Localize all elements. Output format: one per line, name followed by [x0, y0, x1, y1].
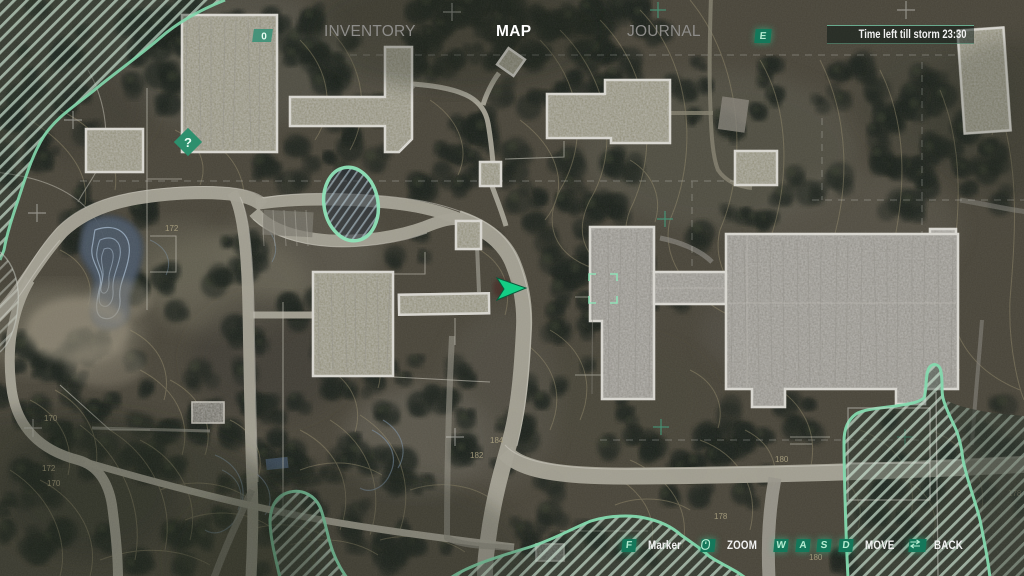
svg-text:0: 0 [261, 32, 267, 43]
svg-text:?: ? [184, 135, 192, 150]
